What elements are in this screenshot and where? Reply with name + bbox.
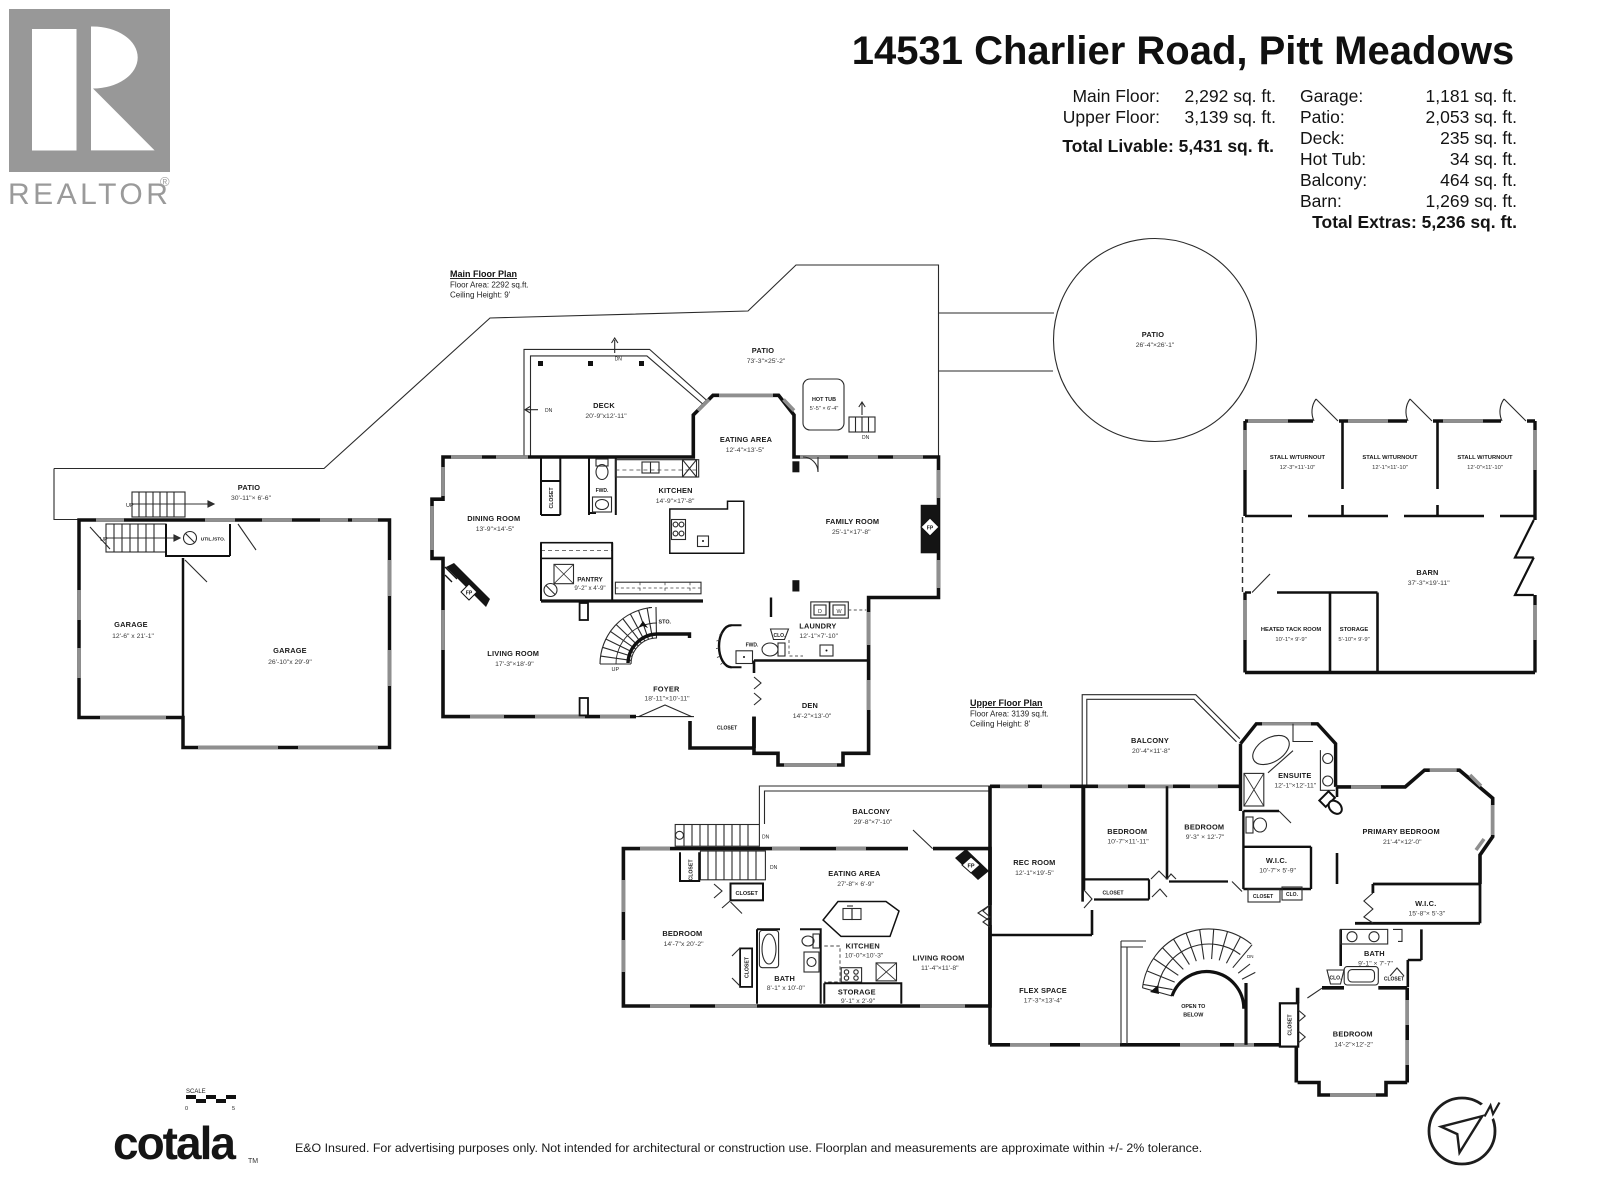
svg-text:Balcony:: Balcony: [1300, 170, 1367, 190]
svg-text:20'-9"x12'-11": 20'-9"x12'-11" [585, 413, 627, 420]
svg-text:Ceiling Height: 8': Ceiling Height: 8' [970, 720, 1031, 729]
svg-text:ENSUITE: ENSUITE [1278, 771, 1311, 780]
svg-text:UP: UP [612, 667, 620, 673]
svg-text:BATH: BATH [774, 974, 795, 983]
svg-text:PATIO: PATIO [238, 483, 261, 492]
svg-text:FLEX SPACE: FLEX SPACE [1019, 986, 1067, 995]
svg-text:BARN: BARN [1416, 568, 1438, 577]
svg-text:29'-8"×7'-10": 29'-8"×7'-10" [854, 819, 893, 826]
svg-text:GARAGE: GARAGE [273, 646, 307, 655]
svg-text:DN: DN [1247, 954, 1254, 959]
svg-text:REC ROOM: REC ROOM [1013, 858, 1055, 867]
svg-text:HOT TUB: HOT TUB [812, 397, 836, 403]
svg-text:Upper Floor Plan: Upper Floor Plan [970, 698, 1043, 708]
svg-text:12'-1"×19'-5": 12'-1"×19'-5" [1015, 870, 1054, 877]
svg-text:TM: TM [248, 1158, 258, 1165]
svg-text:14'-2"×13'-0": 14'-2"×13'-0" [793, 713, 832, 720]
svg-text:FP: FP [927, 526, 934, 532]
svg-text:DN: DN [545, 408, 553, 414]
svg-text:HEATED TACK ROOM: HEATED TACK ROOM [1261, 627, 1321, 633]
svg-text:FP: FP [967, 864, 974, 870]
svg-text:Total Extras: 5,236 sq. ft.: Total Extras: 5,236 sq. ft. [1312, 212, 1517, 232]
svg-text:14531 Charlier Road, Pitt Mead: 14531 Charlier Road, Pitt Meadows [852, 29, 1514, 73]
svg-text:Upper Floor:: Upper Floor: [1063, 107, 1160, 127]
svg-text:5'-5" × 6'-4": 5'-5" × 6'-4" [810, 406, 839, 412]
svg-text:UTIL./STO.: UTIL./STO. [201, 537, 225, 543]
svg-text:PATIO: PATIO [752, 346, 775, 355]
svg-text:14'-2"×12'-2": 14'-2"×12'-2" [1334, 1041, 1373, 1048]
svg-text:BALCONY: BALCONY [852, 807, 890, 816]
svg-text:Main Floor Plan: Main Floor Plan [450, 269, 517, 279]
svg-text:DINING ROOM: DINING ROOM [467, 514, 520, 523]
svg-text:11'-4"×11'-8": 11'-4"×11'-8" [921, 965, 959, 972]
svg-text:Main Floor:: Main Floor: [1072, 86, 1160, 106]
svg-text:10'-1"× 9'-9": 10'-1"× 9'-9" [1275, 637, 1306, 643]
svg-text:10'-7"×11'-11": 10'-7"×11'-11" [1107, 839, 1149, 846]
svg-text:Barn:: Barn: [1300, 191, 1342, 211]
svg-text:0: 0 [185, 1106, 188, 1112]
svg-text:W.I.C.: W.I.C. [1415, 899, 1436, 908]
svg-text:9'-3" × 12'-7": 9'-3" × 12'-7" [1186, 834, 1225, 841]
svg-text:DN: DN [770, 865, 778, 871]
svg-text:cotala: cotala [113, 1117, 236, 1169]
svg-text:PANTRY: PANTRY [577, 577, 603, 584]
svg-text:D: D [818, 609, 822, 615]
svg-text:12'-1"×11'-10": 12'-1"×11'-10" [1372, 465, 1408, 471]
svg-text:UP: UP [126, 503, 134, 509]
svg-text:25'-1"×17'-8": 25'-1"×17'-8" [832, 529, 871, 536]
svg-text:STORAGE: STORAGE [838, 988, 876, 997]
svg-text:REALTOR: REALTOR [8, 178, 171, 211]
svg-text:CLOSET: CLOSET [1288, 1014, 1294, 1036]
svg-text:LIVING ROOM: LIVING ROOM [913, 954, 965, 963]
svg-text:STO.: STO. [659, 620, 672, 626]
svg-text:1,181 sq. ft.: 1,181 sq. ft. [1426, 86, 1517, 106]
svg-text:BEDROOM: BEDROOM [662, 929, 702, 938]
svg-text:Ceiling Height: 9': Ceiling Height: 9' [450, 291, 511, 300]
svg-text:12'-3"×11'-10": 12'-3"×11'-10" [1280, 465, 1316, 471]
svg-text:CLO.: CLO. [774, 633, 787, 639]
svg-text:CLOSET: CLOSET [1253, 894, 1273, 900]
svg-text:GARAGE: GARAGE [114, 620, 148, 629]
svg-text:LAUNDRY: LAUNDRY [799, 622, 836, 631]
svg-text:CLOSET: CLOSET [1102, 891, 1124, 897]
svg-text:CLOSET: CLOSET [717, 726, 737, 732]
svg-text:8'-1" x 10'-0": 8'-1" x 10'-0" [767, 985, 806, 992]
svg-text:20'-4"×11'-8": 20'-4"×11'-8" [1132, 748, 1171, 755]
svg-text:34 sq. ft.: 34 sq. ft. [1450, 149, 1517, 169]
svg-text:BEDROOM: BEDROOM [1333, 1029, 1373, 1038]
svg-text:CLOSET: CLOSET [745, 956, 751, 978]
svg-text:12'-1"×7'-10": 12'-1"×7'-10" [799, 633, 838, 640]
svg-text:2,053 sq. ft.: 2,053 sq. ft. [1426, 107, 1517, 127]
svg-text:5'-10"× 9'-9": 5'-10"× 9'-9" [1338, 637, 1369, 643]
svg-text:9'-2" x 4'-9": 9'-2" x 4'-9" [574, 585, 605, 592]
svg-text:PRIMARY BEDROOM: PRIMARY BEDROOM [1363, 827, 1440, 836]
svg-text:13'-9"×14'-5": 13'-9"×14'-5" [476, 526, 515, 533]
svg-text:235 sq. ft.: 235 sq. ft. [1440, 128, 1517, 148]
svg-text:30'-11"× 6'-6": 30'-11"× 6'-6" [231, 495, 272, 502]
svg-text:12'-1"×12'-11": 12'-1"×12'-11" [1274, 783, 1316, 790]
svg-text:BATH: BATH [1364, 949, 1385, 958]
svg-text:®: ® [160, 174, 170, 189]
svg-text:Floor Area: 2292 sq.ft.: Floor Area: 2292 sq.ft. [450, 281, 529, 290]
svg-text:SCALE: SCALE [186, 1089, 206, 1095]
svg-text:464 sq. ft.: 464 sq. ft. [1440, 170, 1517, 190]
svg-text:73'-3"×25'-2": 73'-3"×25'-2" [747, 358, 786, 365]
svg-text:5: 5 [232, 1106, 235, 1112]
svg-text:3,139 sq. ft.: 3,139 sq. ft. [1185, 107, 1276, 127]
svg-text:W.I.C.: W.I.C. [1266, 856, 1287, 865]
svg-text:EATING AREA: EATING AREA [828, 869, 881, 878]
svg-text:FAMILY ROOM: FAMILY ROOM [826, 517, 880, 526]
svg-text:OPEN TO: OPEN TO [1181, 1004, 1205, 1010]
svg-text:STORAGE: STORAGE [1340, 627, 1369, 633]
svg-text:FWD.: FWD. [746, 643, 759, 649]
svg-text:STALL W/TURNOUT: STALL W/TURNOUT [1457, 455, 1513, 461]
svg-text:9'-1" x 2'-9": 9'-1" x 2'-9" [841, 998, 876, 1005]
svg-text:CLO.: CLO. [1286, 892, 1299, 898]
svg-text:26'-10"x 29'-9": 26'-10"x 29'-9" [268, 659, 312, 666]
svg-text:CLOSET: CLOSET [1384, 977, 1404, 983]
svg-text:1,269 sq. ft.: 1,269 sq. ft. [1426, 191, 1517, 211]
svg-text:10'-0"×10'-3": 10'-0"×10'-3" [845, 953, 884, 960]
svg-text:27'-8"× 6'-9": 27'-8"× 6'-9" [837, 881, 874, 888]
svg-text:BALCONY: BALCONY [1131, 736, 1169, 745]
svg-text:DN: DN [862, 435, 870, 441]
svg-text:12'-6" x 21'-1": 12'-6" x 21'-1" [112, 633, 154, 640]
svg-text:26'-4"×26'-1": 26'-4"×26'-1" [1136, 342, 1175, 349]
svg-text:CLOSET: CLOSET [549, 487, 555, 509]
svg-text:DECK: DECK [593, 401, 615, 410]
svg-text:10'-7"× 5'-9": 10'-7"× 5'-9" [1259, 868, 1296, 875]
svg-text:Hot Tub:: Hot Tub: [1300, 149, 1366, 169]
svg-text:17'-3"×18'-9": 17'-3"×18'-9" [495, 661, 534, 668]
svg-text:PATIO: PATIO [1142, 330, 1165, 339]
svg-text:14'-9"×17'-8": 14'-9"×17'-8" [656, 498, 695, 505]
svg-text:18'-11"×10'-11": 18'-11"×10'-11" [644, 696, 690, 703]
svg-text:STALL W/TURNOUT: STALL W/TURNOUT [1270, 455, 1326, 461]
svg-text:Deck:: Deck: [1300, 128, 1345, 148]
svg-text:CLO.: CLO. [1330, 976, 1343, 982]
svg-text:FWD.: FWD. [596, 488, 609, 494]
svg-text:CLOSET: CLOSET [689, 859, 695, 881]
svg-text:37'-3"×19'-11": 37'-3"×19'-11" [1408, 580, 1450, 587]
svg-text:BELOW: BELOW [1183, 1013, 1204, 1019]
svg-text:DEN: DEN [802, 701, 818, 710]
svg-text:KITCHEN: KITCHEN [846, 942, 880, 951]
svg-text:Total Livable: 5,431 sq. ft.: Total Livable: 5,431 sq. ft. [1062, 136, 1274, 156]
svg-text:CLOSET: CLOSET [736, 891, 759, 897]
svg-text:BEDROOM: BEDROOM [1107, 827, 1147, 836]
svg-text:E&O Insured. For advertising p: E&O Insured. For advertising purposes on… [295, 1141, 1202, 1155]
svg-text:12'-4"×13'-5": 12'-4"×13'-5" [726, 447, 765, 454]
svg-text:12'-0"×11'-10": 12'-0"×11'-10" [1467, 465, 1503, 471]
svg-text:Floor Area: 3139 sq.ft.: Floor Area: 3139 sq.ft. [970, 710, 1049, 719]
svg-text:DN: DN [762, 835, 770, 841]
svg-text:BEDROOM: BEDROOM [1184, 823, 1224, 832]
svg-text:STALL W/TURNOUT: STALL W/TURNOUT [1362, 455, 1418, 461]
svg-text:15'-8"× 5'-3": 15'-8"× 5'-3" [1409, 911, 1446, 918]
svg-text:14'-7"x 20'-2": 14'-7"x 20'-2" [664, 941, 705, 948]
svg-text:EATING AREA: EATING AREA [720, 435, 773, 444]
svg-text:17'-3"×13'-4": 17'-3"×13'-4" [1024, 998, 1063, 1005]
svg-text:Patio:: Patio: [1300, 107, 1345, 127]
svg-text:FOYER: FOYER [653, 685, 680, 694]
svg-text:21'-4"×12'-0": 21'-4"×12'-0" [1383, 839, 1422, 846]
svg-text:FP: FP [466, 590, 473, 596]
svg-text:KITCHEN: KITCHEN [658, 486, 692, 495]
svg-text:DN: DN [615, 357, 623, 363]
svg-text:LIVING ROOM: LIVING ROOM [487, 649, 539, 658]
svg-text:2,292 sq. ft.: 2,292 sq. ft. [1185, 86, 1276, 106]
svg-text:Garage:: Garage: [1300, 86, 1363, 106]
